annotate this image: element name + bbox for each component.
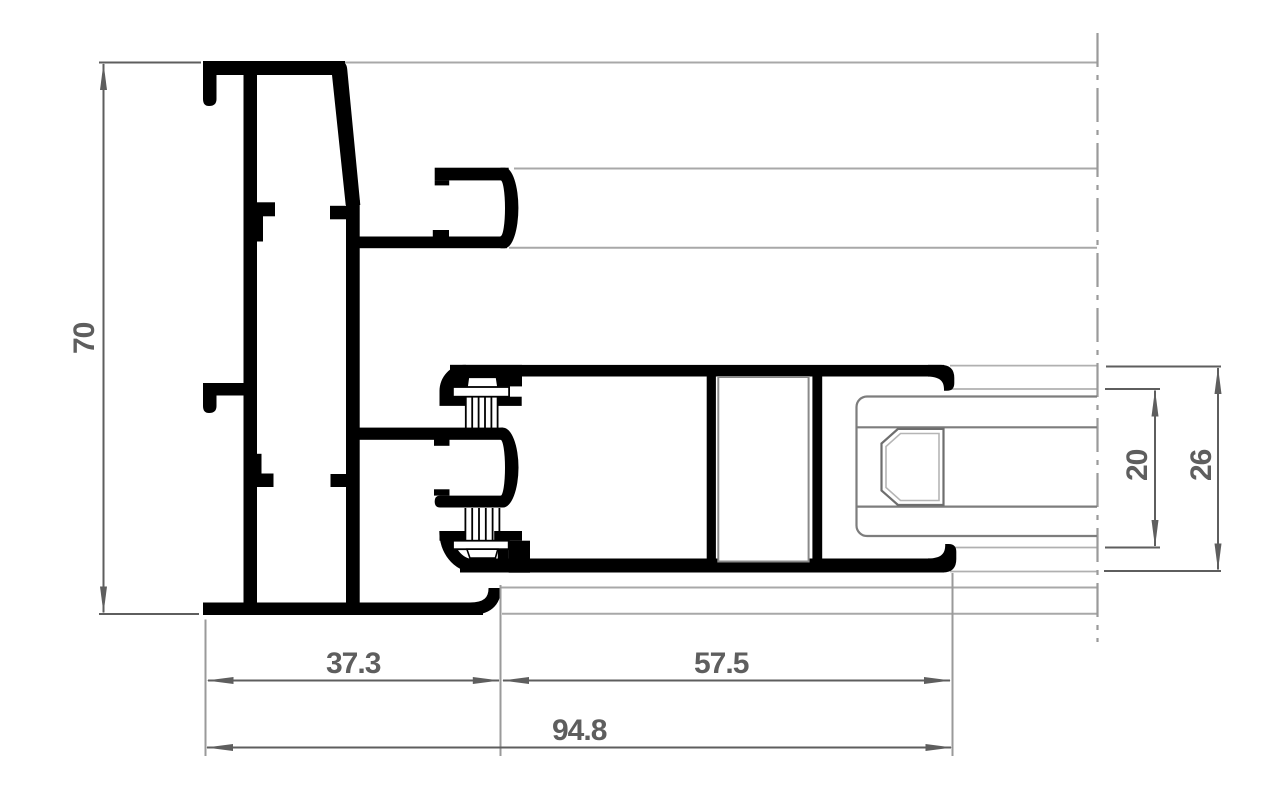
svg-text:20: 20 [1121,449,1154,481]
svg-text:70: 70 [68,322,101,354]
svg-text:57.5: 57.5 [694,647,749,680]
svg-text:94.8: 94.8 [552,714,607,747]
svg-text:37.3: 37.3 [326,647,381,680]
svg-text:26: 26 [1185,449,1218,481]
